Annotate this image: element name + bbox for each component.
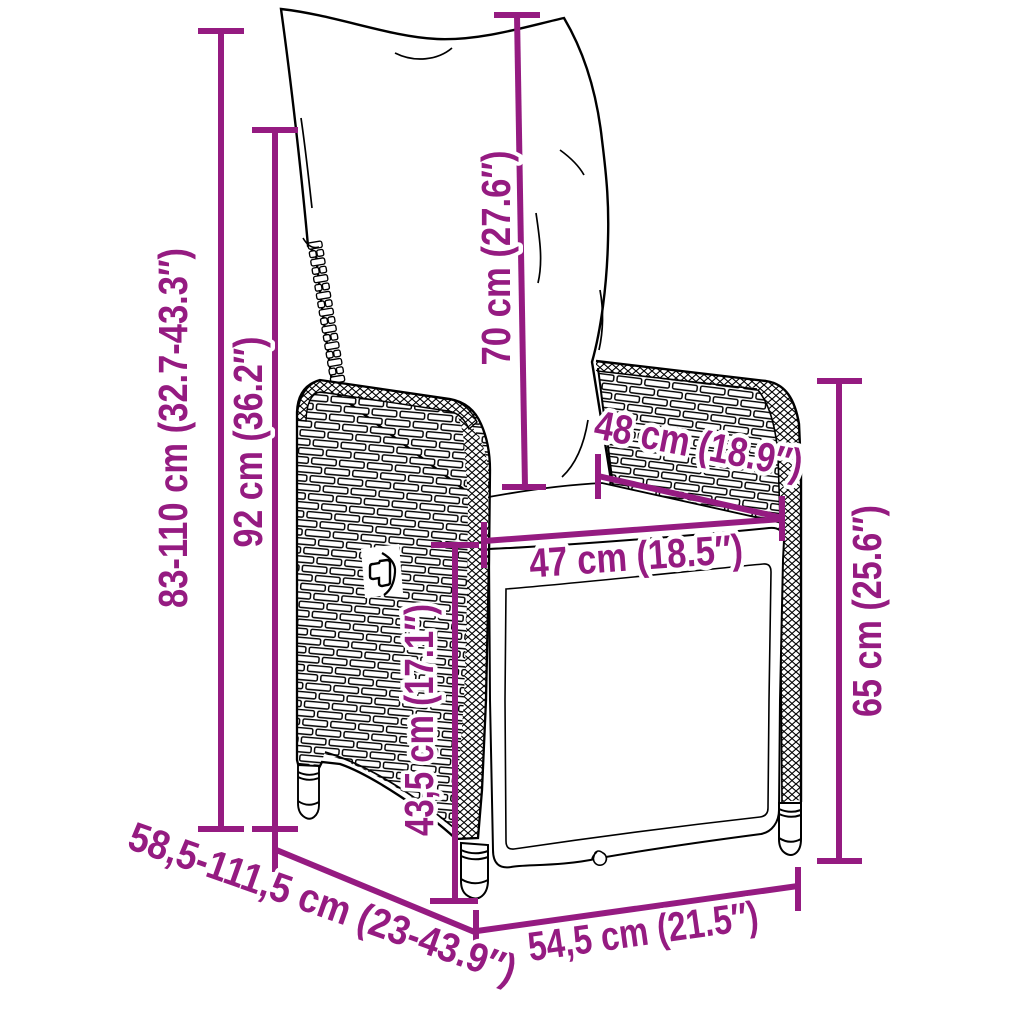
svg-text:65 cm (25.6″): 65 cm (25.6″) (844, 505, 890, 717)
svg-text:70 cm (27.6″): 70 cm (27.6″) (473, 151, 519, 366)
svg-text:43,5 cm (17.1″): 43,5 cm (17.1″) (396, 604, 442, 836)
svg-text:83-110 cm (32.7-43.3″): 83-110 cm (32.7-43.3″) (150, 248, 196, 608)
svg-text:92 cm (36.2″): 92 cm (36.2″) (225, 337, 271, 548)
